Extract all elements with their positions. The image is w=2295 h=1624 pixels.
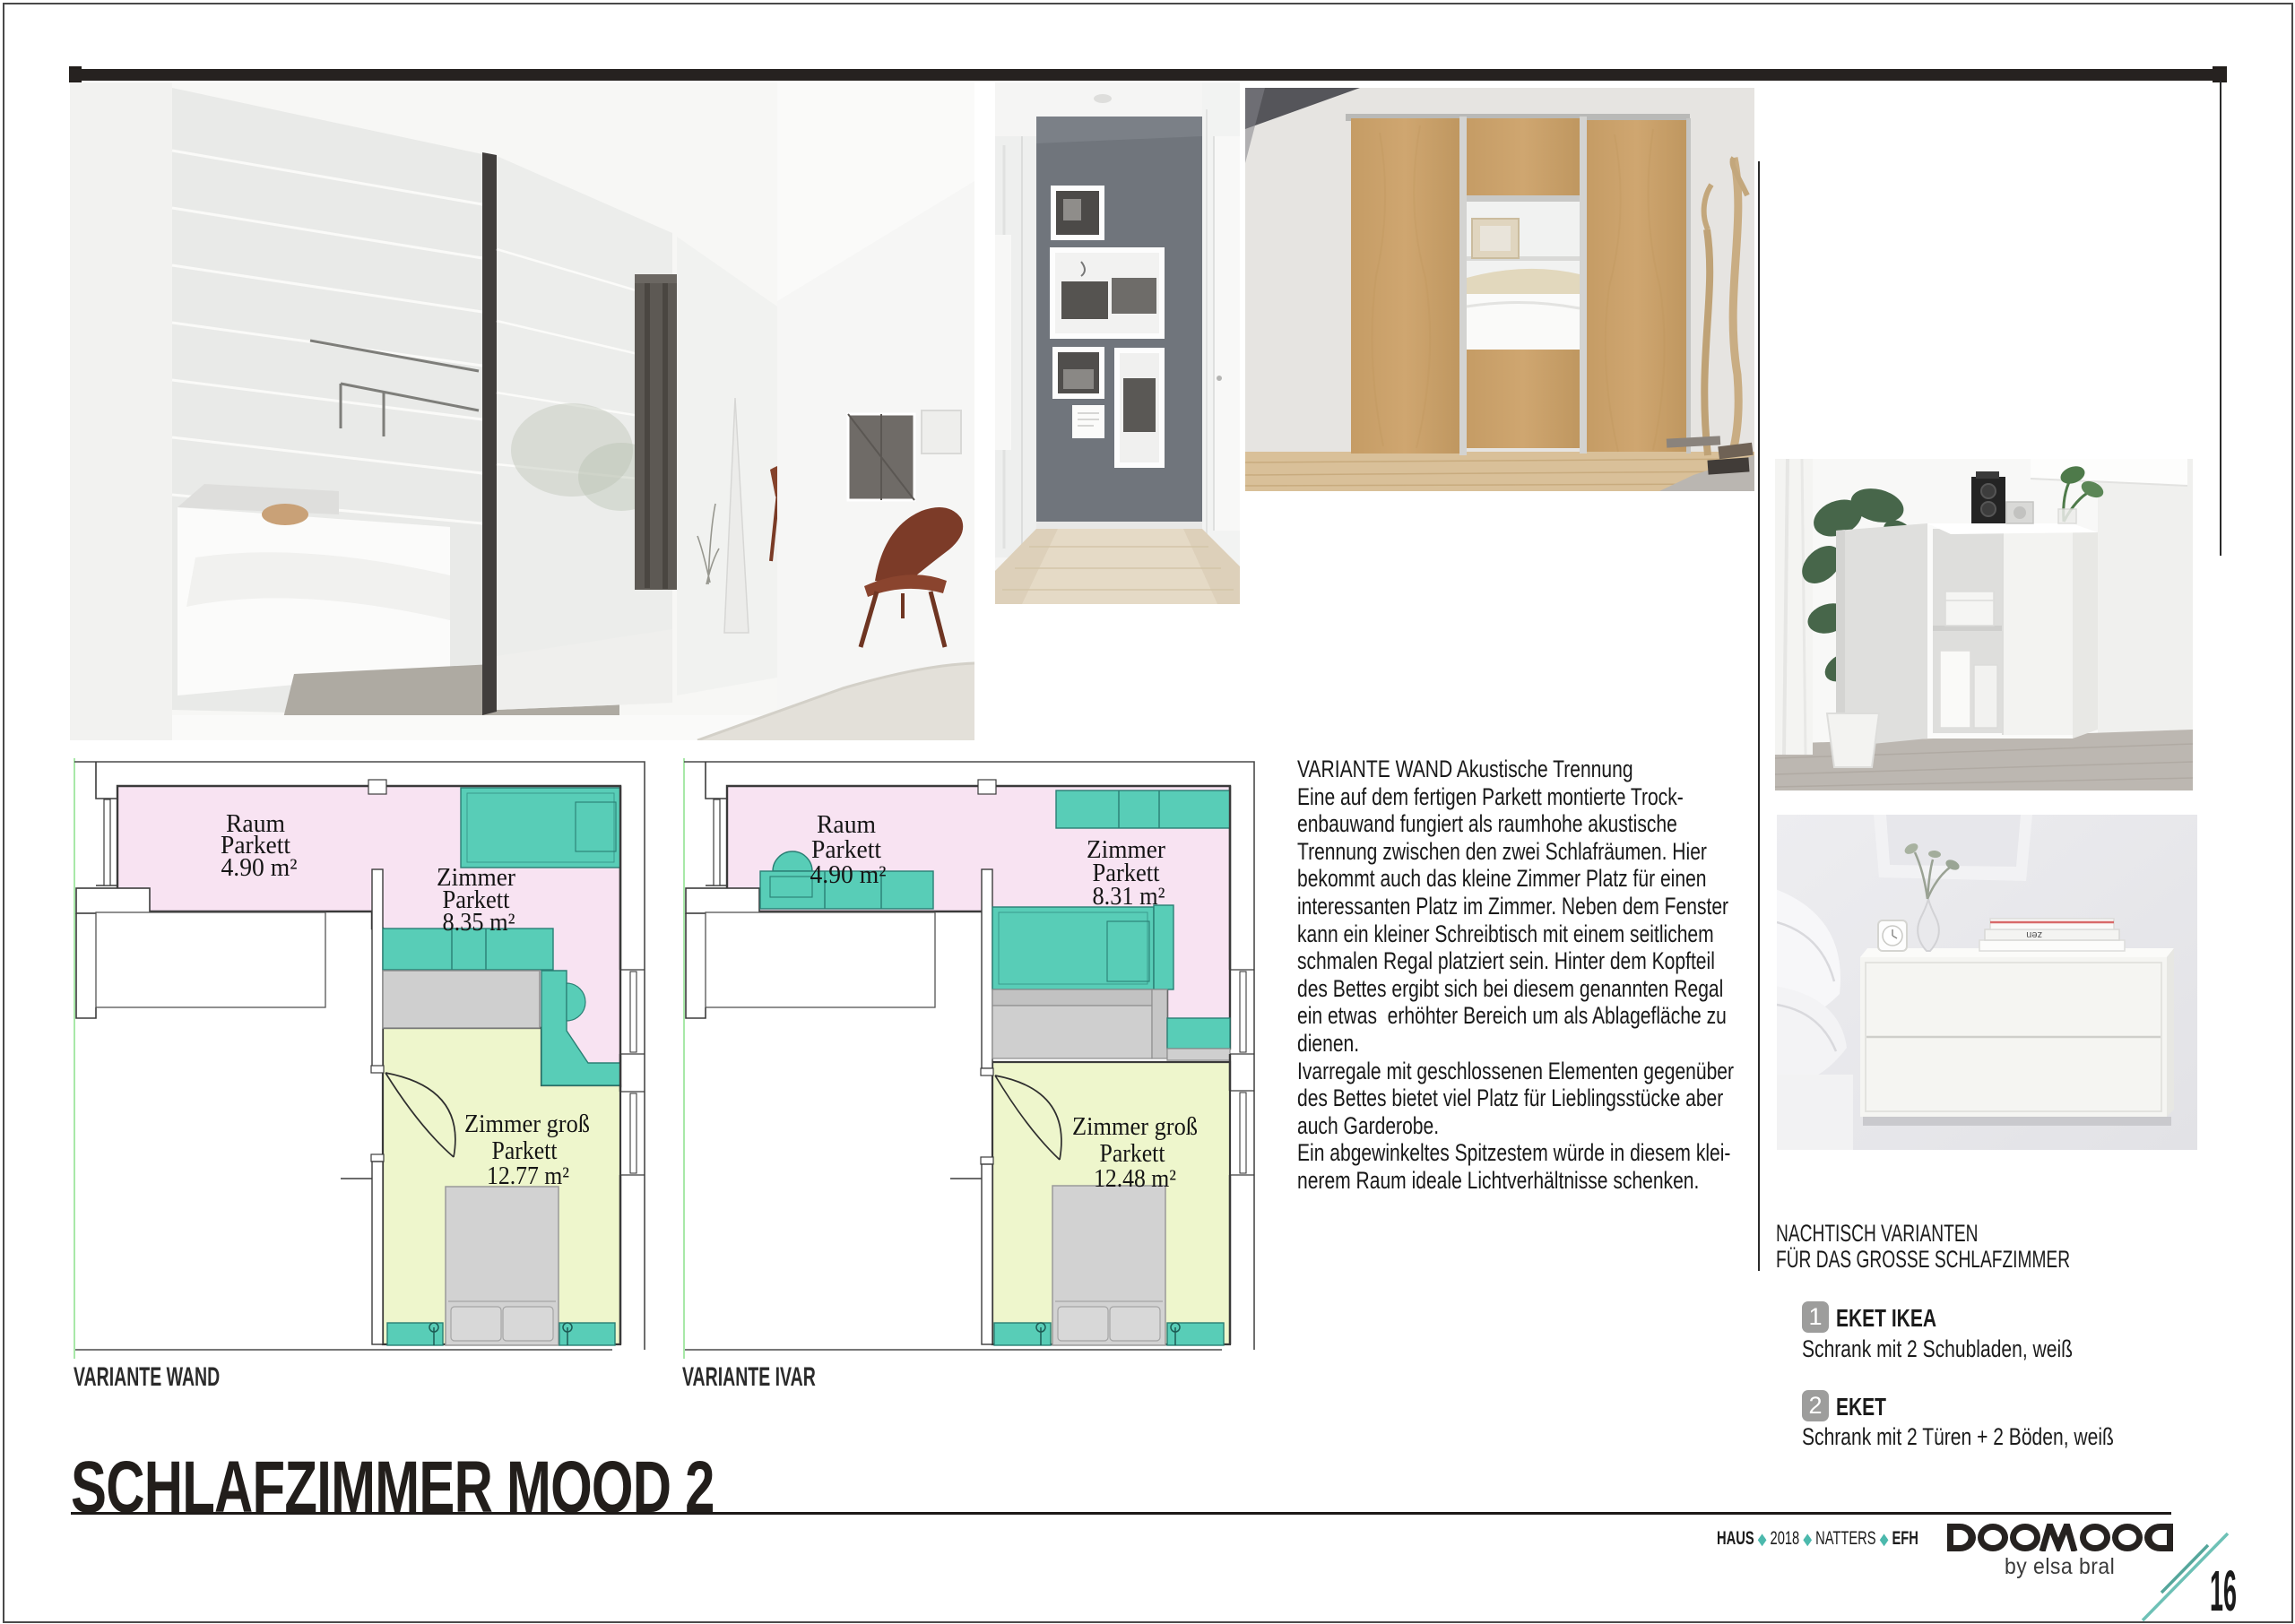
svg-text:zen: zen [2026,929,2042,940]
svg-text:Zimmer groß: Zimmer groß [464,1110,590,1138]
svg-text:4.90 m²: 4.90 m² [221,854,298,882]
svg-text:Parkett: Parkett [811,836,881,864]
svg-text:4.90 m²: 4.90 m² [810,861,887,889]
svg-text:8.31 m²: 8.31 m² [1093,883,1165,911]
svg-text:Parkett: Parkett [1100,1140,1165,1168]
svg-text:Raum: Raum [817,811,876,839]
svg-text:12.77 m²: 12.77 m² [487,1162,569,1190]
svg-text:Zimmer groß: Zimmer groß [1072,1113,1198,1141]
svg-text:Parkett: Parkett [492,1137,558,1165]
svg-text:12.48 m²: 12.48 m² [1094,1165,1176,1193]
svg-text:8.35 m²: 8.35 m² [443,909,515,937]
